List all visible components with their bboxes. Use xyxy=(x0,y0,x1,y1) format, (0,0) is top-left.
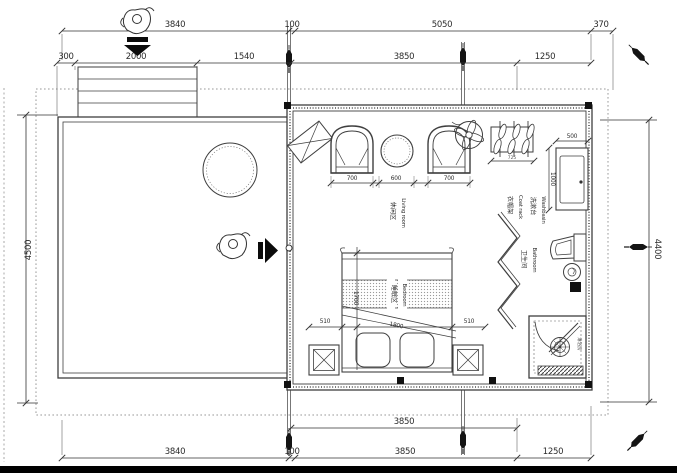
dim-bottom2-1250: 1250 xyxy=(543,447,563,457)
dim-washbasin-depth: 1000 xyxy=(549,172,555,186)
dim-left-height: 4500 xyxy=(24,240,34,260)
shower-enclosure: 淋浴房 xyxy=(529,316,586,378)
dim-top2-300: 300 xyxy=(58,52,73,62)
living-room-label-zh: 休闲区 xyxy=(389,202,397,221)
bedroom-label-en: Bedroom xyxy=(401,284,407,307)
bathroom-label-en: Bathroom xyxy=(531,248,537,273)
dim-top1-5050: 5050 xyxy=(432,20,452,30)
nightstand-icon xyxy=(309,345,339,375)
dim-bed-length-text: 1700 xyxy=(352,291,358,305)
dim-table-600: 600 xyxy=(391,176,402,182)
washbasin-label-en: Washbasin xyxy=(540,196,546,223)
pillow-icon xyxy=(400,333,434,367)
coffee-table-icon xyxy=(381,135,413,167)
armchair-icon xyxy=(331,126,373,173)
door-knob-icon xyxy=(286,245,292,251)
dim-top2-1540: 1540 xyxy=(234,52,254,62)
dim-chair2-700: 700 xyxy=(444,176,455,182)
dim-bottom2-3850: 3850 xyxy=(395,447,415,457)
floor-plan-screenshot: 3840 100 5050 370 300 2000 1540 3850 125… xyxy=(0,0,677,473)
bottom-border-bar xyxy=(0,466,677,473)
nightstand-icon xyxy=(453,345,483,375)
coat-rack-label-en: Coat rack xyxy=(517,195,523,220)
dim-top2-3850: 3850 xyxy=(394,52,414,62)
shower-drain-icon xyxy=(551,338,570,357)
living-room-label-en: Living room xyxy=(400,198,406,228)
dim-chair-700: 700 xyxy=(347,176,358,182)
left-room xyxy=(58,117,293,378)
dim-bed-side-left: 510 xyxy=(320,319,331,325)
washbasin-label-zh: 洗漱台 xyxy=(529,197,537,216)
floor-plan-svg: 3840 100 5050 370 300 2000 1540 3850 125… xyxy=(0,0,677,473)
bedroom-label-zh: 睡眠区 xyxy=(390,285,398,304)
dim-coat-rack: 725 xyxy=(508,155,517,161)
shower-threshold xyxy=(538,366,583,375)
bed: 睡眠区 Bedroom xyxy=(341,248,456,372)
dim-bottom2-100: 100 xyxy=(284,447,299,457)
dim-top2-1250: 1250 xyxy=(535,52,555,62)
dim-bottom2-3840: 3840 xyxy=(165,447,185,457)
dim-top1-3840: 3840 xyxy=(165,20,185,30)
dim-top1-370: 370 xyxy=(593,20,608,30)
dim-bed-side-right: 510 xyxy=(464,319,475,325)
faucet-icon xyxy=(579,180,582,183)
dim-bottom1-3850: 3850 xyxy=(394,417,414,427)
shower-label-zh: 淋浴房 xyxy=(576,337,583,351)
entry-steps xyxy=(78,67,197,117)
pillow-icon xyxy=(356,333,390,367)
coat-rack-label-zh: 衣帽架 xyxy=(506,196,514,215)
dim-top1-100: 100 xyxy=(284,20,299,30)
dim-washbasin-width: 500 xyxy=(567,134,578,140)
bathroom-label-zh: 卫生间 xyxy=(520,250,528,269)
dim-right-height: 4400 xyxy=(652,239,662,259)
round-table-icon xyxy=(203,143,257,197)
